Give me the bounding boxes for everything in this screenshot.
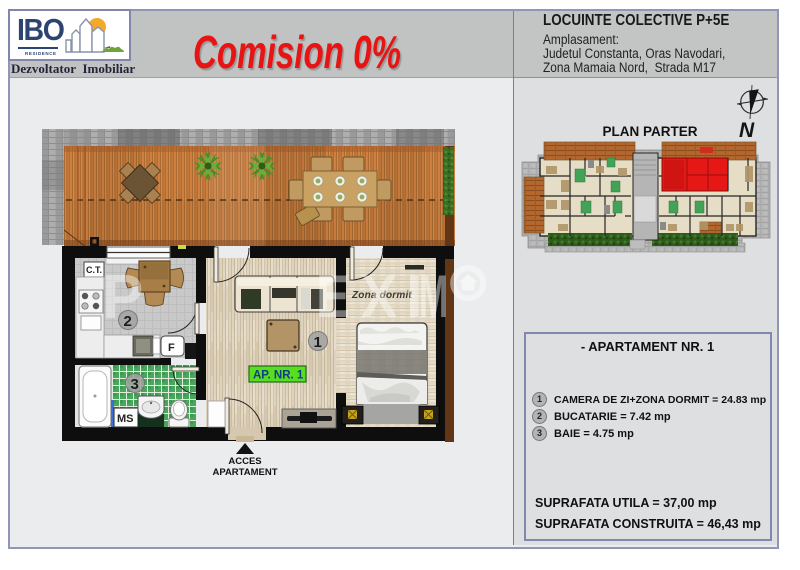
svg-text:Zona dormit: Zona dormit (351, 290, 412, 301)
svg-text:C.T.: C.T. (86, 265, 102, 275)
svg-text:AP. NR. 1: AP. NR. 1 (253, 370, 304, 382)
svg-text:F: F (168, 342, 175, 354)
svg-text:3: 3 (131, 376, 139, 393)
svg-text:1: 1 (314, 334, 322, 351)
svg-text:MS: MS (117, 413, 134, 425)
svg-text:2: 2 (124, 313, 132, 330)
